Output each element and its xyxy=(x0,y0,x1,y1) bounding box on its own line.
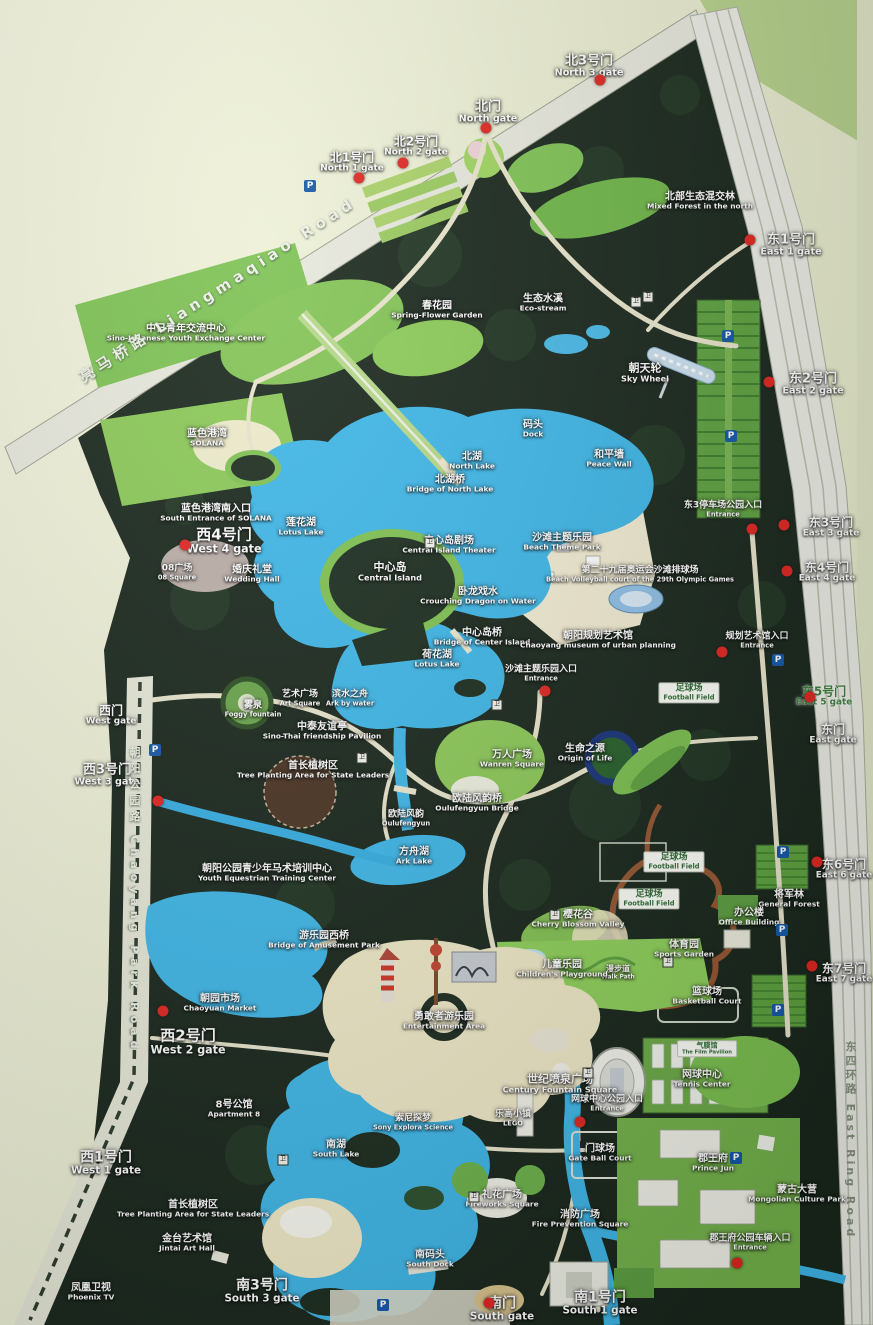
park-map-photo: 北1号门North 1 gate北2号门North 2 gate北门North … xyxy=(0,0,873,1325)
map-graphics xyxy=(0,0,873,1325)
